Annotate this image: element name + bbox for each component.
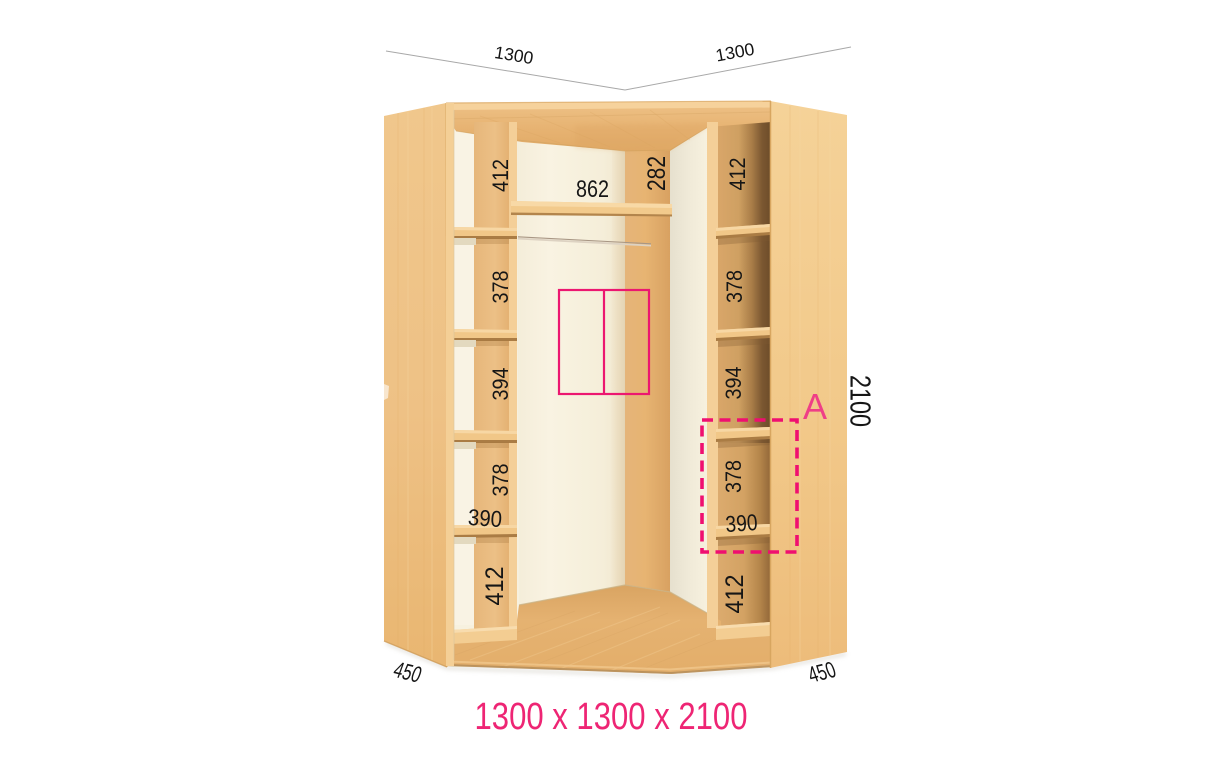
svg-text:390: 390 [467,504,503,532]
svg-text:282: 282 [643,156,671,191]
svg-text:378: 378 [488,464,513,497]
svg-text:378: 378 [721,460,746,493]
svg-text:412: 412 [488,159,513,192]
svg-text:A: A [803,386,827,427]
svg-text:1300 x 1300 x 2100: 1300 x 1300 x 2100 [475,696,748,738]
svg-text:378: 378 [722,270,747,303]
svg-text:390: 390 [725,509,759,537]
svg-text:412: 412 [725,158,750,191]
svg-text:394: 394 [721,367,746,400]
svg-text:862: 862 [576,176,609,203]
svg-text:378: 378 [488,271,513,304]
svg-text:394: 394 [488,368,513,401]
svg-text:412: 412 [721,575,749,614]
svg-text:2100: 2100 [844,375,876,427]
svg-text:412: 412 [481,567,509,606]
